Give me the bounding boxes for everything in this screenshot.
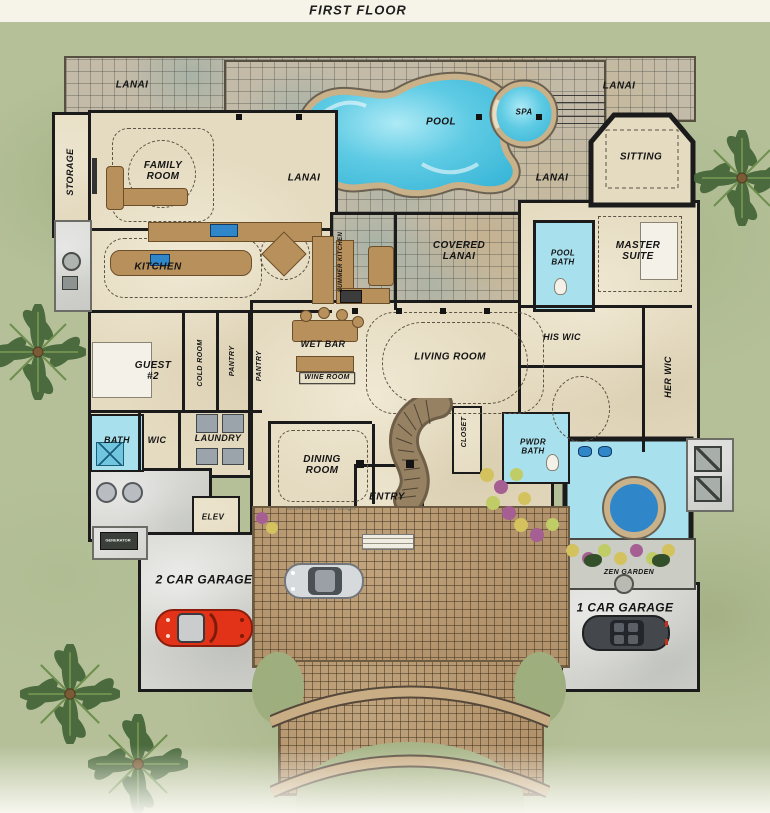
wall <box>268 421 372 424</box>
master-tub <box>604 478 664 538</box>
flower <box>502 506 516 520</box>
porch-column <box>406 460 414 468</box>
flower <box>514 518 528 532</box>
label-his-wic: HIS WIC <box>543 333 581 343</box>
column <box>476 114 482 120</box>
flower <box>630 544 643 557</box>
bar-stool <box>352 316 364 328</box>
flower <box>614 552 627 565</box>
flower <box>510 468 523 481</box>
entry-steps <box>362 534 414 550</box>
pool-bath-toilet <box>554 278 567 295</box>
equipment <box>62 252 81 271</box>
hall-oval <box>552 376 610 442</box>
label-wet-bar: WET BAR <box>301 340 346 350</box>
family-sofa <box>114 188 188 206</box>
lanai-table <box>368 246 394 286</box>
wall <box>178 413 181 470</box>
wall <box>642 308 645 452</box>
label-kitchen: KITCHEN <box>134 263 181 274</box>
pwdr-toilet <box>546 454 559 471</box>
label-summer-kitchen: SUMMER KITCHEN <box>338 232 344 293</box>
label-master-suite: MASTER SUITE <box>608 241 668 263</box>
water-heater <box>122 482 143 503</box>
dryer <box>222 414 244 433</box>
label-wine-room: WINE ROOM <box>299 372 355 384</box>
laundry-counter-appl <box>222 448 244 465</box>
zen-fountain <box>614 574 634 594</box>
master-sink <box>578 446 592 457</box>
flower <box>266 522 278 534</box>
label-spa: SPA <box>515 109 532 118</box>
label-living-room: LIVING ROOM <box>414 353 486 364</box>
label-lanai-pool-left: LANAI <box>288 174 321 185</box>
dark-convertible-car <box>580 612 672 654</box>
flower <box>494 480 508 494</box>
silver-car <box>282 560 366 602</box>
label-sitting: SITTING <box>620 153 662 164</box>
label-wic: WIC <box>148 436 167 446</box>
flower <box>256 512 268 524</box>
bottom-fade <box>0 745 770 813</box>
wall <box>88 310 332 313</box>
label-covered-lanai: COVERED LANAI <box>419 241 499 263</box>
laundry-counter-appl <box>196 448 218 465</box>
floor-plan: FIRST FLOOR <box>0 0 770 813</box>
flower <box>518 492 531 505</box>
label-lanai-top-right: LANAI <box>603 82 636 93</box>
column <box>352 308 358 314</box>
label-pool-bath: POOL BATH <box>546 249 580 266</box>
wall <box>248 313 251 470</box>
tv-wall <box>92 158 97 194</box>
label-pool: POOL <box>426 118 456 129</box>
label-dining-room: DINING ROOM <box>294 455 350 477</box>
column <box>236 114 242 120</box>
label-entry: ENTRY <box>369 493 405 504</box>
palm-tree <box>0 304 86 400</box>
label-lanai-top-left: LANAI <box>116 81 149 92</box>
column <box>396 308 402 314</box>
flower <box>486 496 500 510</box>
column <box>536 114 542 120</box>
cooktop <box>210 224 238 237</box>
column <box>484 308 490 314</box>
wall <box>88 410 262 413</box>
palm-tree <box>694 130 770 226</box>
bar-stool <box>300 310 312 322</box>
label-her-wic: HER WIC <box>664 356 674 398</box>
label-pantry-1: PANTRY <box>229 346 237 377</box>
label-laundry: LAUNDRY <box>195 434 242 444</box>
wall <box>520 305 692 308</box>
kitchen-counter-side <box>312 236 334 304</box>
ac-unit <box>694 476 722 502</box>
washer <box>196 414 218 433</box>
wall <box>216 313 219 413</box>
label-pantry-2: PANTRY <box>256 351 264 382</box>
column <box>440 308 446 314</box>
label-zen-garden: ZEN GARDEN <box>604 569 654 577</box>
wall <box>182 313 185 413</box>
equipment <box>62 276 78 290</box>
label-bath: BATH <box>104 436 130 446</box>
label-guest-2: GUEST #2 <box>128 361 178 383</box>
flower <box>530 528 544 542</box>
wetbar-back-counter <box>296 356 354 372</box>
flower <box>566 544 579 557</box>
copyright-note: ©2014 Dan Stevenson Designs <box>286 506 356 512</box>
generator-label: GENERATOR <box>105 538 130 543</box>
family-sofa-side <box>106 166 124 210</box>
porch-column <box>356 460 364 468</box>
master-sink <box>598 446 612 457</box>
label-lanai-pool-right: LANAI <box>536 174 569 185</box>
label-storage: STORAGE <box>66 148 76 195</box>
bar-stool <box>318 307 330 319</box>
column <box>296 114 302 120</box>
label-family-room: FAMILY ROOM <box>132 161 194 183</box>
flower <box>546 518 559 531</box>
label-closet: CLOSET <box>461 417 469 448</box>
water-heater <box>96 482 117 503</box>
label-elev: ELEV <box>202 514 225 523</box>
label-pwdr-bath: PWDR BATH <box>515 438 551 455</box>
label-cold-room: COLD ROOM <box>197 339 205 386</box>
wall <box>138 413 141 470</box>
wall <box>394 214 397 310</box>
red-sports-car <box>152 606 256 650</box>
ac-unit <box>694 446 722 472</box>
page-title: FIRST FLOOR <box>309 3 407 18</box>
flower <box>480 468 494 482</box>
bar-stool <box>336 309 348 321</box>
label-garage-2car: 2 CAR GARAGE <box>156 574 253 587</box>
label-garage-1car: 1 CAR GARAGE <box>577 602 674 615</box>
